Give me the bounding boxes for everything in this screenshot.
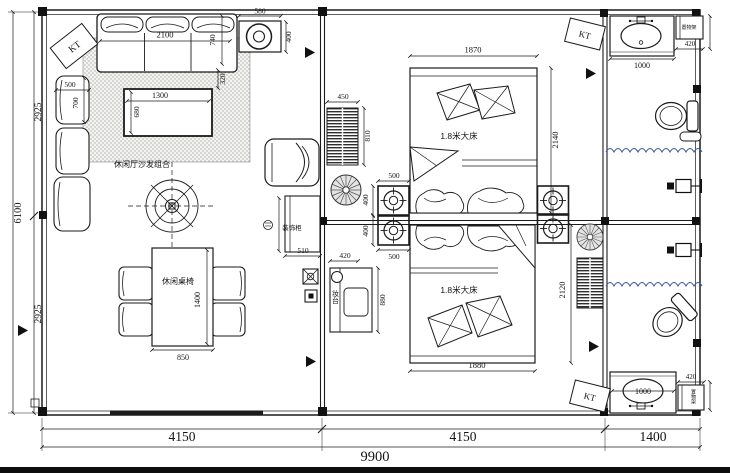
shelf-top-label: 置物架: [681, 24, 696, 31]
dim-chair-d: 700: [71, 97, 80, 109]
dim-bay2: 4150: [450, 429, 477, 444]
pillow: [474, 86, 515, 119]
dining-table-set: [119, 248, 245, 346]
dim-overall-w: 9900: [361, 449, 390, 465]
kt-box-c: KT: [570, 380, 611, 412]
sheet-edge: [0, 467, 730, 473]
dim-ac-h: 810: [363, 130, 372, 142]
dining-set-label: 休闲桌椅: [162, 276, 194, 286]
sofa-group-label: 休闲厅沙发组合: [114, 159, 170, 169]
dim-bed1-l: 2140: [550, 132, 560, 149]
bed-top-label: 1.8米大床: [440, 131, 478, 141]
dim-dresser-w: 420: [339, 251, 351, 260]
shower-curtain-wave: [606, 283, 702, 287]
downlight-icon: [378, 186, 409, 215]
dim-downlight-w: 500: [388, 171, 400, 180]
dim-sofa-gap: 320: [218, 73, 227, 85]
dim-overall-h: 6100: [13, 203, 24, 224]
corner-detail: [31, 399, 39, 407]
dim-cabinet-w: 510: [297, 246, 309, 255]
decor-cabinet: [264, 196, 321, 252]
dim-chair-w: 500: [64, 80, 76, 89]
bedroom-top: [327, 68, 603, 250]
decor-cabinet-label: 装饰柜: [282, 223, 302, 232]
dim-h-top: 2925: [34, 102, 44, 121]
switch-icons: [303, 269, 318, 302]
dim-ceiling-box-h: 400: [284, 31, 293, 43]
shower-curtain-wave: [606, 149, 702, 153]
dim-bay3: 1400: [640, 429, 667, 444]
ceiling-fan-symbol: [128, 162, 216, 250]
dim-bed1-w: 1870: [465, 45, 482, 55]
dim-shelf2-w: 420: [686, 373, 697, 381]
dim-shelf1-w: 420: [685, 40, 696, 48]
exhaust-fan-icon: [577, 224, 603, 250]
toilet-top: [656, 101, 702, 141]
direction-arrow-icon: [586, 68, 596, 79]
dim-dining-l: 1400: [193, 292, 202, 308]
exhaust-fan-icon: [331, 175, 361, 205]
toilet-tank: [687, 101, 698, 131]
downlight-icon: [538, 214, 569, 243]
dresser-stool: [344, 288, 368, 316]
shelf-bottom-label: 置物架: [690, 389, 696, 405]
kt-box-b: KT: [565, 18, 606, 50]
toilet-mat: [680, 132, 701, 141]
living-room: KT: [50, 14, 320, 346]
shower-head-icon: [667, 243, 701, 257]
basin: [621, 24, 661, 49]
downlight-icon: [538, 186, 569, 215]
dim-ac-w: 450: [337, 92, 349, 101]
direction-arrow-icon: [306, 356, 316, 367]
dim-sofa-w: 2100: [157, 30, 174, 40]
bed-bottom-label: 1.8米大床: [440, 285, 478, 295]
dim-dining-w: 850: [177, 353, 189, 362]
dim-sink1-w: 1000: [634, 61, 650, 70]
direction-arrow-icon: [305, 47, 315, 58]
dim-coffee-w: 1300: [152, 91, 168, 100]
dim-downlight-h: 400: [361, 194, 370, 206]
dresser-mirror: [332, 272, 343, 283]
dim-bed2-l: 2120: [557, 282, 567, 299]
dining-table: [152, 248, 213, 346]
dim-bed2-w: 1880: [469, 360, 486, 370]
floor-plan-canvas: KT: [0, 0, 730, 473]
dim-coffee-d: 680: [132, 106, 141, 118]
dim-downlight-w2: 500: [388, 252, 400, 261]
dim-dresser-l: 880: [378, 294, 387, 306]
faucet-icon: [637, 17, 645, 23]
dim-sink2-w: 1000: [635, 387, 651, 396]
shower-head-icon: [667, 179, 701, 193]
toilet-bottom: [646, 292, 698, 343]
dim-h-bottom: 2925: [34, 304, 44, 323]
dim-sofa-d: 740: [208, 34, 217, 46]
dresser-label: 妆台: [332, 289, 340, 305]
direction-arrow-icon: [18, 325, 28, 336]
sink-top: [610, 16, 674, 56]
dim-downlight-h2: 400: [361, 225, 370, 237]
direction-arrow-icon: [589, 341, 599, 352]
armchair: [265, 139, 319, 186]
ceiling-speaker: [239, 21, 281, 52]
dim-ceiling-box-w: 580: [254, 7, 266, 16]
cabinet-icon: [264, 221, 273, 230]
dim-bay1: 4150: [169, 429, 196, 444]
